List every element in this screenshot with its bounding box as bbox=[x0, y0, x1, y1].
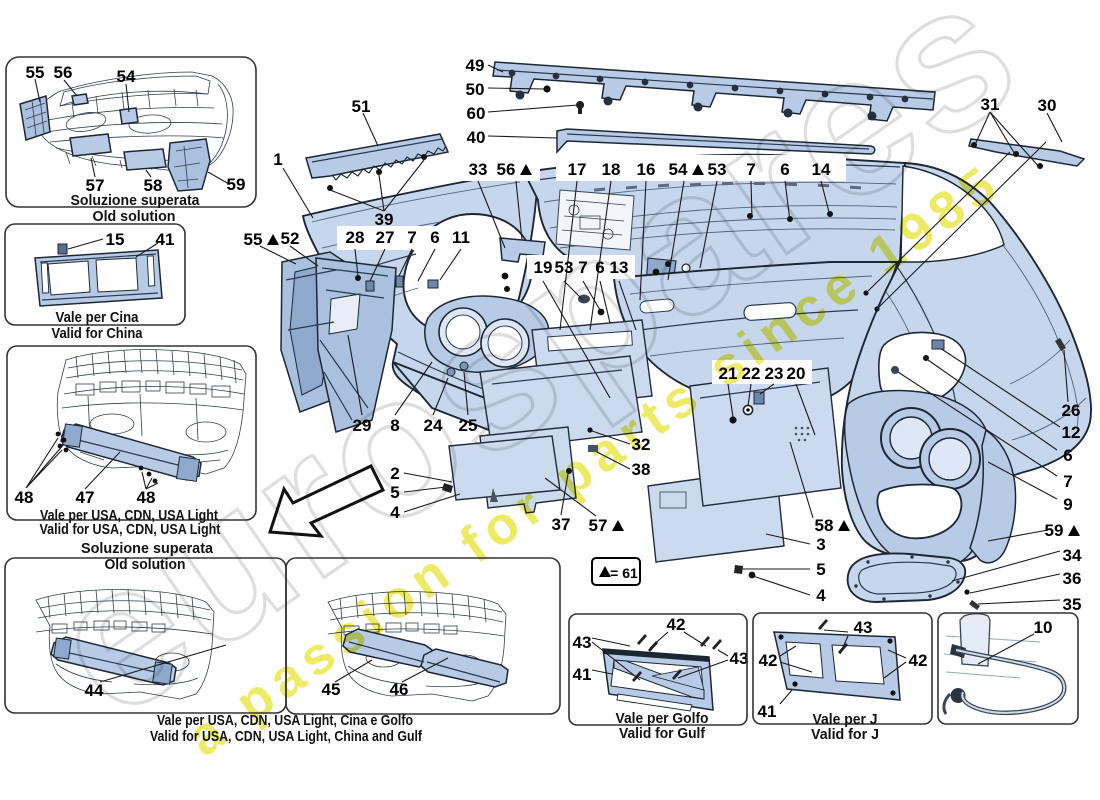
svg-text:56: 56 bbox=[497, 160, 516, 179]
svg-text:6: 6 bbox=[780, 160, 789, 179]
svg-text:51: 51 bbox=[352, 97, 371, 116]
svg-text:41: 41 bbox=[156, 230, 175, 249]
svg-text:57: 57 bbox=[589, 516, 608, 535]
svg-text:39: 39 bbox=[375, 210, 394, 229]
svg-text:38: 38 bbox=[632, 460, 651, 479]
svg-text:33: 33 bbox=[469, 160, 488, 179]
svg-text:18: 18 bbox=[602, 160, 621, 179]
svg-text:5: 5 bbox=[816, 560, 825, 579]
svg-text:41: 41 bbox=[573, 665, 592, 684]
svg-text:25: 25 bbox=[459, 416, 478, 435]
svg-text:1: 1 bbox=[273, 150, 282, 169]
svg-text:Soluzione superata: Soluzione superata bbox=[71, 193, 201, 209]
svg-text:3: 3 bbox=[816, 535, 825, 554]
svg-text:36: 36 bbox=[1063, 569, 1082, 588]
svg-text:42: 42 bbox=[909, 651, 928, 670]
svg-text:10: 10 bbox=[1034, 618, 1053, 637]
svg-text:Old solution: Old solution bbox=[105, 557, 186, 573]
svg-text:55: 55 bbox=[244, 230, 263, 249]
svg-text:7: 7 bbox=[407, 228, 416, 247]
svg-text:30: 30 bbox=[1038, 96, 1057, 115]
svg-text:Vale per Cina: Vale per Cina bbox=[56, 310, 140, 326]
svg-text:45: 45 bbox=[322, 680, 341, 699]
svg-text:59: 59 bbox=[227, 175, 246, 194]
svg-text:44: 44 bbox=[85, 681, 104, 700]
svg-text:Vale per J: Vale per J bbox=[813, 712, 878, 728]
svg-text:Valid for USA, CDN, USA Light,: Valid for USA, CDN, USA Light, China and… bbox=[150, 729, 422, 745]
svg-text:21: 21 bbox=[719, 364, 738, 383]
svg-text:7: 7 bbox=[746, 160, 755, 179]
svg-text:4: 4 bbox=[390, 503, 400, 522]
svg-text:59: 59 bbox=[1045, 521, 1064, 540]
svg-text:50: 50 bbox=[466, 80, 485, 99]
svg-text:54: 54 bbox=[669, 160, 688, 179]
svg-text:40: 40 bbox=[467, 128, 486, 147]
svg-text:26: 26 bbox=[1062, 401, 1081, 420]
svg-text:Old solution: Old solution bbox=[93, 209, 176, 225]
svg-text:19: 19 bbox=[534, 258, 553, 277]
svg-text:49: 49 bbox=[466, 56, 485, 75]
svg-text:29: 29 bbox=[353, 416, 372, 435]
svg-text:11: 11 bbox=[452, 228, 470, 247]
svg-text:22: 22 bbox=[742, 364, 761, 383]
svg-text:Valid for Gulf: Valid for Gulf bbox=[619, 726, 705, 742]
svg-text:56: 56 bbox=[54, 63, 73, 82]
svg-text:Vale per Golfo: Vale per Golfo bbox=[616, 711, 709, 727]
svg-text:28: 28 bbox=[346, 228, 365, 247]
svg-text:8: 8 bbox=[390, 416, 399, 435]
svg-text:48: 48 bbox=[15, 488, 34, 507]
svg-text:9: 9 bbox=[1063, 495, 1072, 514]
svg-text:Vale per USA, CDN, USA Light,: Vale per USA, CDN, USA Light, Cina e Gol… bbox=[157, 713, 413, 729]
svg-text:16: 16 bbox=[637, 160, 656, 179]
svg-text:15: 15 bbox=[106, 230, 125, 249]
svg-text:31: 31 bbox=[981, 95, 1000, 114]
svg-text:53: 53 bbox=[708, 160, 727, 179]
svg-text:Valid for China: Valid for China bbox=[52, 326, 144, 342]
svg-text:37: 37 bbox=[552, 515, 571, 534]
svg-text:Soluzione superata: Soluzione superata bbox=[81, 541, 214, 557]
svg-text:14: 14 bbox=[812, 160, 831, 179]
svg-text:42: 42 bbox=[667, 615, 686, 634]
svg-text:47: 47 bbox=[76, 488, 95, 507]
svg-text:6: 6 bbox=[1063, 446, 1072, 465]
svg-text:27: 27 bbox=[376, 228, 395, 247]
svg-text:43: 43 bbox=[854, 618, 873, 637]
svg-text:13: 13 bbox=[610, 258, 629, 277]
svg-text:58: 58 bbox=[815, 516, 834, 535]
svg-text:42: 42 bbox=[759, 651, 778, 670]
svg-text:7: 7 bbox=[578, 258, 587, 277]
svg-text:53: 53 bbox=[555, 258, 574, 277]
svg-text:52: 52 bbox=[281, 229, 300, 248]
svg-text:54: 54 bbox=[117, 67, 136, 86]
svg-text:4: 4 bbox=[816, 586, 826, 605]
svg-text:= 61: = 61 bbox=[610, 565, 638, 581]
svg-text:7: 7 bbox=[1063, 472, 1072, 491]
svg-text:6: 6 bbox=[595, 258, 604, 277]
svg-text:43: 43 bbox=[573, 633, 592, 652]
svg-text:20: 20 bbox=[787, 364, 806, 383]
svg-text:48: 48 bbox=[137, 488, 156, 507]
svg-text:46: 46 bbox=[390, 680, 409, 699]
svg-text:32: 32 bbox=[632, 435, 651, 454]
svg-text:5: 5 bbox=[390, 483, 399, 502]
svg-text:2: 2 bbox=[390, 464, 399, 483]
svg-text:55: 55 bbox=[26, 63, 45, 82]
svg-text:23: 23 bbox=[765, 364, 784, 383]
svg-text:12: 12 bbox=[1062, 423, 1081, 442]
svg-text:17: 17 bbox=[568, 160, 587, 179]
svg-text:24: 24 bbox=[424, 416, 443, 435]
svg-text:6: 6 bbox=[430, 228, 439, 247]
svg-text:35: 35 bbox=[1063, 595, 1082, 614]
svg-text:Valid for USA, CDN, USA Light: Valid for USA, CDN, USA Light bbox=[40, 522, 221, 538]
svg-text:60: 60 bbox=[467, 104, 486, 123]
svg-text:34: 34 bbox=[1063, 546, 1082, 565]
svg-text:Valid for J: Valid for J bbox=[811, 727, 879, 743]
svg-text:43: 43 bbox=[730, 649, 749, 668]
svg-text:41: 41 bbox=[758, 702, 777, 721]
